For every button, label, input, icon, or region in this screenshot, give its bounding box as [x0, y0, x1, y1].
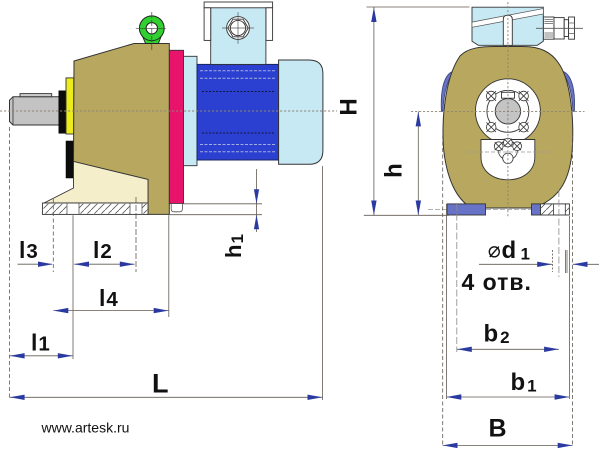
svg-text:B: B [489, 415, 507, 443]
svg-text:l3: l3 [19, 237, 38, 263]
svg-text:L: L [152, 369, 169, 399]
svg-text:d: d [502, 237, 517, 264]
svg-text:h1: h1 [221, 234, 247, 258]
svg-text:b2: b2 [484, 321, 510, 348]
svg-text:h: h [381, 163, 408, 178]
svg-text:l1: l1 [31, 330, 50, 356]
svg-text:1: 1 [521, 245, 530, 264]
svg-text:l2: l2 [93, 237, 112, 263]
svg-text:www.artesk.ru: www.artesk.ru [41, 420, 130, 436]
svg-text:H: H [336, 98, 363, 115]
svg-text:b1: b1 [511, 369, 537, 396]
svg-text:l4: l4 [99, 285, 118, 311]
svg-text:4 отв.: 4 отв. [462, 269, 532, 295]
